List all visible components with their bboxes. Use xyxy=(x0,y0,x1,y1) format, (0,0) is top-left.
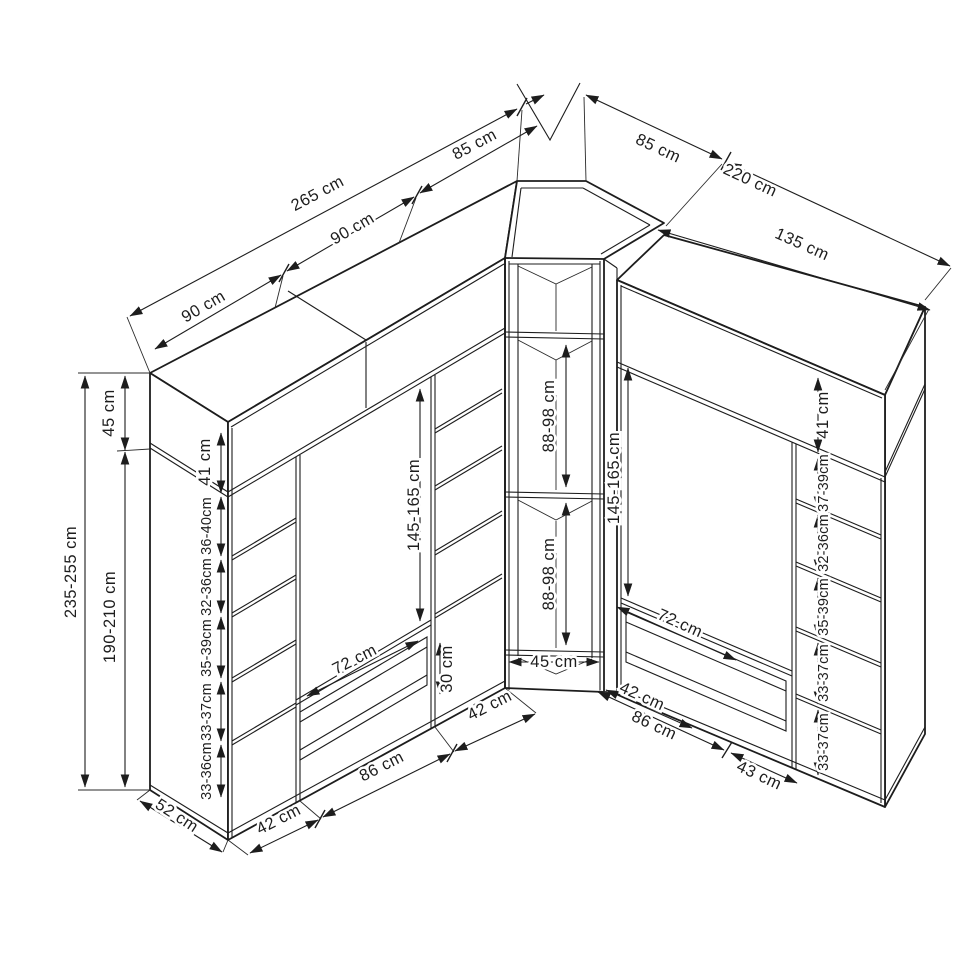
dim-left-gap-4: 33-37cm xyxy=(199,683,215,741)
diagram-canvas: 265 cm 85 cm 90 cm 90 cm 85 cm 220 cm 13… xyxy=(0,0,960,960)
corner-front-edges xyxy=(505,258,604,692)
corner-front-details xyxy=(505,261,604,690)
dim-bottom-43: 43 cm xyxy=(734,757,785,793)
dim-corner-upper: 88-98 cm xyxy=(540,380,558,453)
dim-top-corner-right: 85 cm xyxy=(633,130,684,166)
dim-right-gap-2: 32-36cm xyxy=(816,514,832,572)
dim-right-gap-4: 33-37cm xyxy=(816,644,832,702)
dim-drawer-zone: 30 cm xyxy=(438,645,456,692)
dim-top-right-section: 135 cm xyxy=(772,225,831,265)
dim-41-right: 41 cm xyxy=(814,391,832,438)
dim-hanging-right: 145-165 cm xyxy=(605,432,623,524)
dim-left-gap-5: 33-36cm xyxy=(199,742,215,800)
dim-top-right-total: 220 cm xyxy=(720,160,779,200)
dim-height-total: 235-255 cm xyxy=(62,526,80,618)
dim-41-left: 41 cm xyxy=(196,438,214,485)
dim-right-gap-3: 35-39cm xyxy=(816,578,832,636)
dim-hanging-left: 145-165 cm xyxy=(405,459,423,551)
dim-right-gap-5: 33-37cm xyxy=(816,713,832,771)
dim-top-shelf-45: 45 cm xyxy=(100,389,118,436)
dim-left-gap-1: 36-40cm xyxy=(199,497,215,555)
corner-shelf-back-lines xyxy=(518,266,592,674)
dim-top-left-total: 265 cm xyxy=(288,172,347,215)
dim-left-gap-3: 35-39cm xyxy=(199,619,215,677)
dim-corner-opening: 45 cm xyxy=(530,653,577,671)
dim-corner-lower: 88-98 cm xyxy=(540,538,558,611)
dim-left-gap-2: 32-36cm xyxy=(199,558,215,616)
wardrobe-dimension-diagram: 265 cm 85 cm 90 cm 90 cm 85 cm 220 cm 13… xyxy=(0,0,960,960)
left-unit-side-face xyxy=(150,373,228,840)
dim-height-interior: 190-210 cm xyxy=(101,571,119,663)
right-unit-side-face xyxy=(885,307,925,807)
dim-top-90b: 90 cm xyxy=(327,209,377,248)
dim-right-gap-1: 37-39cm xyxy=(816,454,832,512)
